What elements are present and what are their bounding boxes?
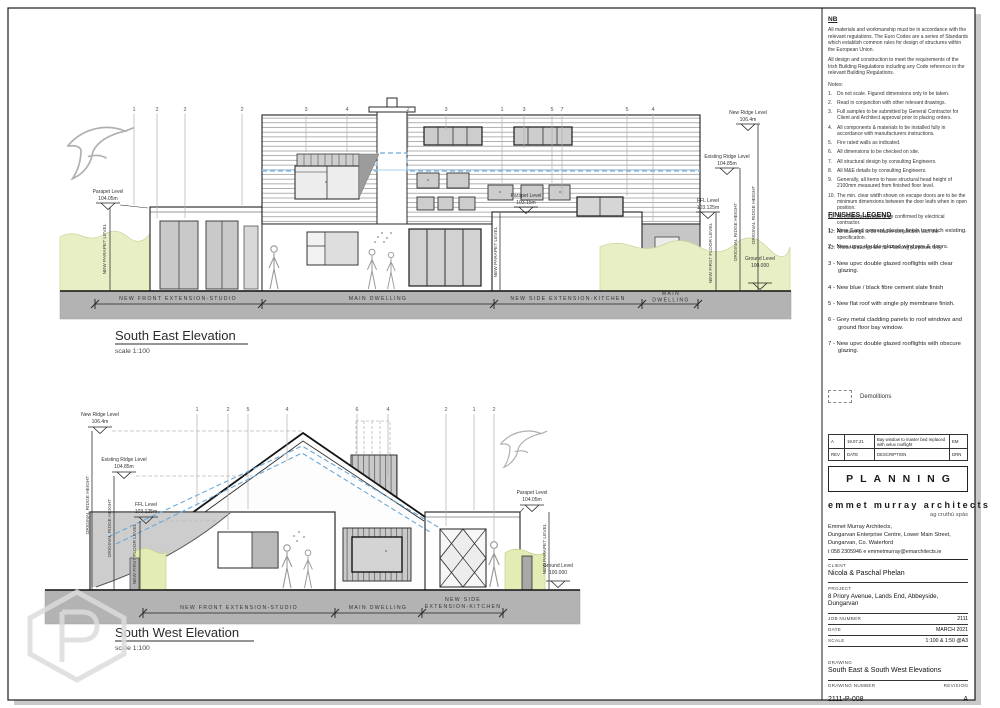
drawing-number-value: 2111-P-008: [828, 696, 864, 703]
project-label: PROJECT: [828, 586, 968, 591]
se-ffl-vlabel: NEW FIRST FLOOR LEVEL: [708, 222, 714, 283]
finish-item: 6 - Grey metal cladding panels to roof w…: [828, 317, 968, 332]
se-orig-ridge-vlabel1: ORIGINAL RIDGE HEIGHT: [751, 186, 757, 245]
firm-address-line3: Dungarvan, Co. Waterford: [828, 539, 968, 547]
note-item: 6.All dimensions to be checked on site.: [828, 149, 968, 155]
svg-text:1: 1: [195, 407, 198, 413]
se-ground-floor: [262, 224, 492, 291]
drawing-title-value: South East & South West Elevations: [828, 667, 968, 674]
divider: [828, 635, 968, 636]
divider: [828, 582, 968, 583]
revision-value: A: [963, 696, 968, 703]
sheet-shadow-right: [975, 14, 981, 704]
svg-text:2: 2: [492, 407, 495, 413]
sw-dim-studio: NEW FRONT EXTENSION-STUDIO: [180, 605, 298, 611]
svg-text:2: 2: [406, 107, 409, 113]
date-label: DATE: [828, 627, 841, 632]
sw-exist-ridge-value: 104.85m: [114, 464, 133, 470]
note-item: 10.The min. clear width shown on escape …: [828, 193, 968, 211]
finish-item: 4 - New blue / black fibre cement slate …: [828, 285, 968, 292]
drawing-number-label: DRAWING NUMBER: [828, 683, 875, 688]
svg-text:7: 7: [560, 107, 563, 113]
sw-parapet-value: 104.05m: [522, 497, 541, 503]
note-item: 2.Read in conjunction with other relevan…: [828, 100, 968, 106]
divider: [828, 559, 968, 560]
finishes-legend-heading: FINISHES LEGEND: [828, 212, 968, 219]
svg-text:5: 5: [246, 407, 249, 413]
note-item: 1.Do not scale. Figured dimensions only …: [828, 91, 968, 97]
demolitions-key: Demolitions: [828, 390, 968, 403]
title-block-panel: NB All materials and workmanship must be…: [823, 8, 975, 700]
sw-dim-kitchen2: EXTENSION-KITCHEN: [425, 604, 502, 610]
job-number-value: 2111: [957, 616, 968, 622]
drawing-number-row: DRAWING NUMBER 2111-P-008 REVISION A: [828, 683, 968, 706]
se-ffl-value: 103.125m: [697, 205, 719, 211]
firm-tagline: ag cruthú spás: [828, 512, 968, 518]
sw-studio-extension: [90, 512, 335, 590]
se-dim-main2b: DWELLING: [652, 298, 690, 304]
svg-text:4: 4: [386, 407, 389, 413]
se-new-ridge-label: New Ridge Level: [729, 110, 767, 116]
divider: [828, 646, 968, 647]
sw-scale: scale 1:100: [115, 645, 150, 652]
se-parapet-label: Parapet Level: [93, 189, 124, 195]
se-dim-kitchen: NEW SIDE EXTENSION-KITCHEN: [510, 296, 625, 302]
sw-ground-label: Ground Level: [543, 563, 573, 569]
date-value: MARCH 2021: [936, 627, 968, 633]
se-dim-main: MAIN DWELLING: [349, 296, 407, 302]
finish-item: 2 - New upvc double glazed windows & doo…: [828, 244, 968, 251]
svg-text:2: 2: [240, 107, 243, 113]
demolitions-label: Demolitions: [860, 394, 891, 400]
divider: [828, 624, 968, 625]
se-kitchen-parapet-label: Parapet Level: [511, 193, 542, 199]
se-exist-ridge-label: Existing Ridge Level: [704, 154, 749, 160]
job-number-label: JOB NUMBER: [828, 616, 861, 621]
se-studio-extension: [150, 207, 262, 291]
scale-row: SCALE 1:100 & 1:50 @A3: [828, 638, 968, 644]
svg-text:6: 6: [355, 407, 358, 413]
rev-header-drn: DRN: [950, 449, 967, 460]
finish-item: 5 - New flat roof with single ply membra…: [828, 301, 968, 308]
revision-label: REVISION: [944, 683, 968, 688]
se-orig-ridge-vlabel2: ORIGINAL RIDGE HEIGHT: [733, 203, 739, 262]
scale-label: SCALE: [828, 638, 845, 643]
finish-item: 7 - New upvc double glazed rooflights wi…: [828, 341, 968, 356]
divider: [828, 613, 968, 614]
finish-item: 3 - New upvc double glazed rooflights wi…: [828, 261, 968, 276]
sw-parapet-label: Parapet Level: [517, 490, 548, 496]
se-exist-ridge-value: 104.85m: [717, 161, 736, 167]
se-scale: scale 1:100: [115, 348, 150, 355]
client-label: CLIENT: [828, 563, 968, 568]
notes-list-heading: Notes:: [828, 82, 968, 88]
sw-title: South West Elevation: [115, 625, 239, 640]
sw-ffl-value: 103.125m: [135, 509, 157, 515]
nb-heading: NB: [828, 16, 968, 23]
sw-orig-ridge-vlabel1: ORIGINAL RIDGE HEIGHT: [85, 476, 91, 535]
divider: [828, 680, 968, 681]
note-item: 7.All structural design by consulting En…: [828, 159, 968, 165]
sw-new-ridge-label: New Ridge Level: [81, 412, 119, 418]
sw-dim-kitchen1: NEW SIDE: [445, 597, 481, 603]
svg-text:3: 3: [522, 107, 525, 113]
svg-text:5: 5: [625, 107, 628, 113]
rev-header-rev: REV: [829, 449, 845, 460]
drawing-label: DRAWING: [828, 660, 968, 665]
svg-text:4: 4: [285, 407, 288, 413]
sw-ffl-label: FFL Level: [135, 502, 157, 508]
svg-text:1: 1: [500, 107, 503, 113]
svg-text:3: 3: [444, 107, 447, 113]
project-value: 8 Priory Avenue, Lands End, Abbeyside, D…: [828, 593, 968, 607]
client-value: Nicola & Paschal Phelan: [828, 570, 968, 577]
title-block: CLIENT Nicola & Paschal Phelan PROJECT 8…: [828, 551, 968, 708]
sw-orig-ridge-vlabel2: ORIGINAL RIDGE HEIGHT: [107, 499, 113, 558]
notes-para-2: All design and construction to meet the …: [828, 57, 968, 77]
job-number-row: JOB NUMBER 2111: [828, 616, 968, 622]
rev-header-date: DATE: [845, 449, 875, 460]
se-kitchen-parapet-vlabel: NEW PARAPET LEVEL: [493, 226, 499, 277]
note-item: 9.Generally, all items to have structura…: [828, 177, 968, 189]
svg-text:2: 2: [226, 407, 229, 413]
svg-text:2: 2: [155, 107, 158, 113]
firm-address-line2: Dungarvan Enterprise Centre, Lower Main …: [828, 531, 968, 539]
se-parapet-value: 104.05m: [98, 196, 117, 202]
drawing-sheet-page: NEW FRONT EXTENSION-STUDIO MAIN DWELLING…: [0, 0, 1000, 708]
se-new-parapet-vlabel: NEW PARAPET LEVEL: [102, 223, 108, 274]
sw-exist-ridge-label: Existing Ridge Level: [101, 457, 146, 463]
planning-stamp: PLANNING: [828, 466, 968, 492]
rev-header-description: DESCRIPTION: [875, 449, 950, 460]
date-row: DATE MARCH 2021: [828, 627, 968, 633]
note-item: 8.All M&E details by consulting Engineer…: [828, 168, 968, 174]
firm-name: emmet murray architects: [828, 500, 968, 510]
finishes-legend: FINISHES LEGEND 1 - New Sand cement plas…: [828, 212, 968, 365]
se-ground-value: 100.000: [751, 263, 769, 269]
rev-drawn-by: EM: [950, 435, 967, 449]
note-item: 5.Fire rated walls as indicated.: [828, 140, 968, 146]
notes-para-1: All materials and workmanship must be in…: [828, 27, 968, 53]
se-new-ridge-value: 106.4m: [740, 117, 757, 123]
se-dim-studio: NEW FRONT EXTENSION-STUDIO: [119, 296, 237, 302]
svg-text:3: 3: [304, 107, 307, 113]
svg-text:2: 2: [183, 107, 186, 113]
firm-address: Emmet Murray Architects, Dungarvan Enter…: [828, 523, 968, 547]
scale-value: 1:100 & 1:50 @A3: [926, 638, 968, 644]
se-title: South East Elevation: [115, 328, 236, 343]
sw-bay-window: [343, 528, 411, 581]
se-ffl-label: FFL Level: [697, 198, 719, 204]
sw-post-right: [522, 556, 532, 590]
revision-table: A 19.07.21 Bay window to master bed repl…: [828, 434, 968, 461]
rev-value: A: [829, 435, 845, 449]
se-dim-main2a: MAIN: [662, 291, 680, 297]
sw-ground-value: 100.000: [549, 570, 567, 576]
se-ground-label: Ground Level: [745, 256, 775, 262]
svg-text:1: 1: [132, 107, 135, 113]
svg-text:4: 4: [345, 107, 348, 113]
note-item: 4.All components & materials to be insta…: [828, 125, 968, 137]
note-item: 3.Full samples to be submitted by Genera…: [828, 109, 968, 121]
demolitions-swatch: [828, 390, 852, 403]
svg-text:4: 4: [651, 107, 654, 113]
firm-address-line1: Emmet Murray Architects,: [828, 523, 968, 531]
svg-text:1: 1: [472, 407, 475, 413]
sw-dim-main: MAIN DWELLING: [349, 605, 407, 611]
rev-date: 19.07.21: [845, 435, 875, 449]
se-kitchen-parapet-value: 103.15m: [516, 200, 535, 206]
rev-description: Bay window to master bed replaced with v…: [875, 435, 950, 449]
sw-new-ridge-value: 106.4m: [92, 419, 109, 425]
svg-text:5: 5: [550, 107, 553, 113]
svg-text:2: 2: [444, 407, 447, 413]
sw-ffl-vlabel: NEW FIRST FLOOR LEVEL: [132, 523, 138, 584]
finish-item: 1 - New Sand cement plaster finish to ma…: [828, 228, 968, 235]
